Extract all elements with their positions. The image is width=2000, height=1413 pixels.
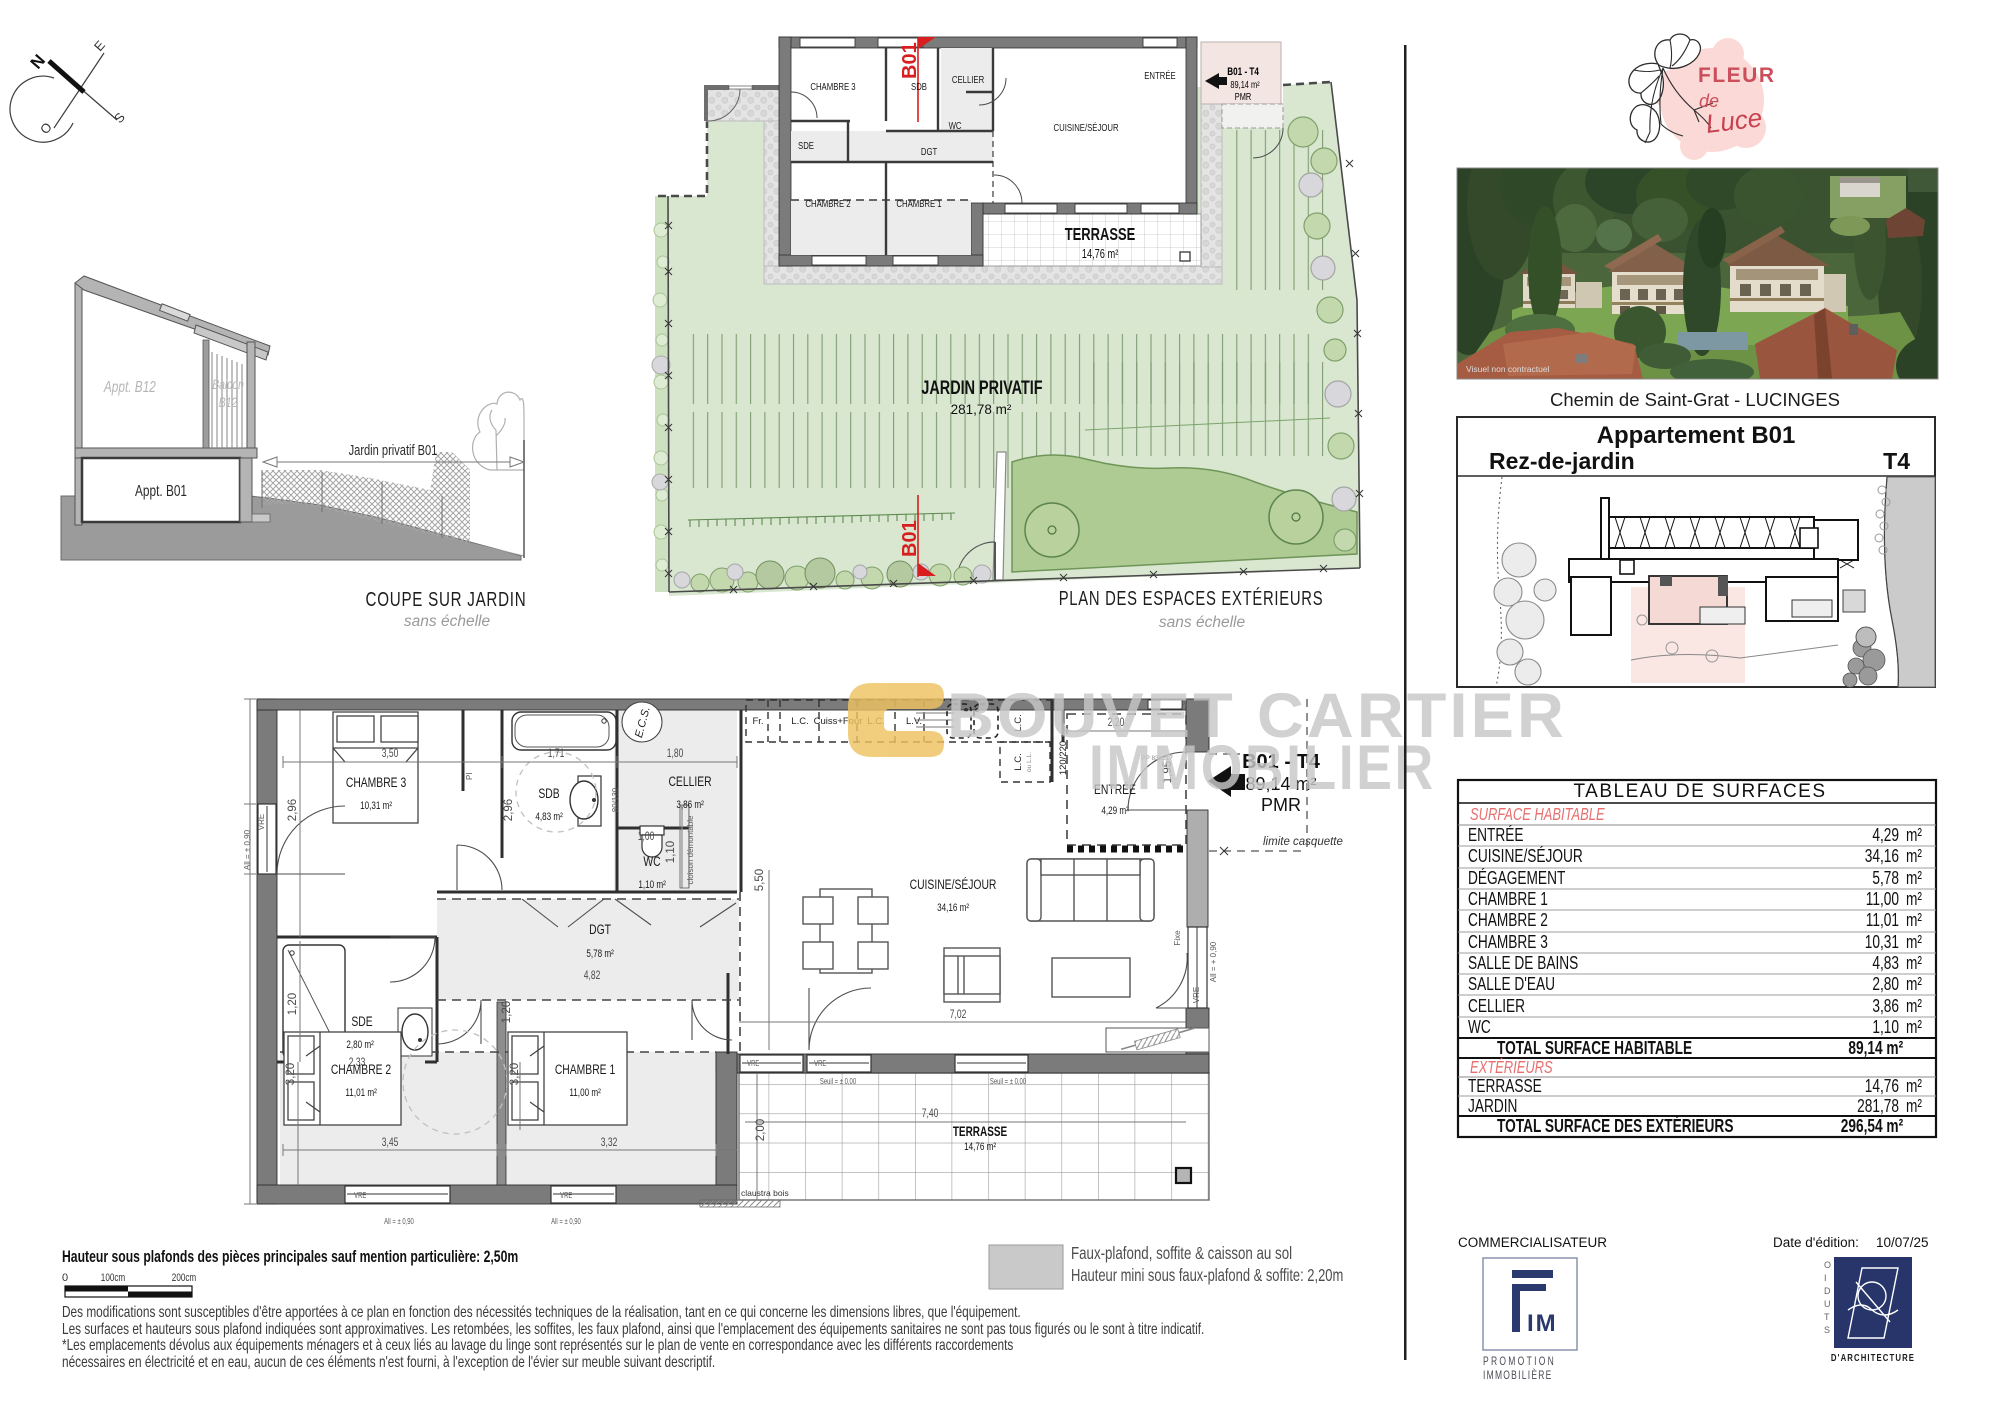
svg-text:Chemin de Saint-Grat - LUCINGE: Chemin de Saint-Grat - LUCINGES: [1550, 389, 1840, 410]
svg-text:11,01 m²: 11,01 m²: [345, 1087, 377, 1100]
svg-text:ou L.L.: ou L.L.: [1026, 752, 1033, 772]
svg-text:m²: m²: [1906, 1076, 1922, 1096]
svg-text:CUISINE/SÉJOUR: CUISINE/SÉJOUR: [1468, 845, 1583, 867]
svg-text:14,76: 14,76: [1865, 1076, 1899, 1096]
svg-text:L.C.: L.C.: [791, 716, 808, 727]
svg-text:sans échelle: sans échelle: [404, 613, 491, 630]
svg-text:VRE: VRE: [560, 1192, 572, 1200]
svg-text:4,82: 4,82: [584, 970, 601, 983]
svg-text:Fixe: Fixe: [1173, 930, 1182, 946]
svg-text:1,10: 1,10: [665, 841, 677, 863]
svg-text:Rez-de-jardin: Rez-de-jardin: [1489, 448, 1635, 474]
svg-text:IMMOBILIÈRE: IMMOBILIÈRE: [1483, 1368, 1553, 1383]
svg-text:4,29 m²: 4,29 m²: [1101, 805, 1129, 818]
svg-text:2,80: 2,80: [1872, 974, 1899, 994]
svg-text:Balcon: Balcon: [212, 376, 244, 392]
svg-text:3,20: 3,20: [285, 1063, 297, 1085]
svg-text:4,83 m²: 4,83 m²: [535, 811, 563, 824]
svg-text:2,80 m²: 2,80 m²: [346, 1039, 374, 1052]
svg-text:CHAMBRE 2: CHAMBRE 2: [1468, 910, 1548, 930]
svg-text:2,96: 2,96: [287, 799, 299, 821]
svg-text:Hauteur mini sous faux-plafond: Hauteur mini sous faux-plafond & soffite…: [1071, 1266, 1343, 1285]
svg-text:CHAMBRE 2: CHAMBRE 2: [331, 1061, 391, 1077]
svg-text:11,00 m²: 11,00 m²: [569, 1087, 601, 1100]
svg-text:O: O: [37, 119, 55, 136]
svg-text:2,00: 2,00: [755, 1119, 767, 1141]
svg-text:TOTAL SURFACE DES EXTÉRIEURS: TOTAL SURFACE DES EXTÉRIEURS: [1497, 1115, 1734, 1137]
svg-text:SDE: SDE: [351, 1013, 372, 1029]
svg-text:3,50: 3,50: [382, 748, 399, 761]
svg-text:JARDIN PRIVATIF: JARDIN PRIVATIF: [921, 376, 1042, 399]
svg-text:T: T: [1824, 1312, 1830, 1322]
svg-text:CHAMBRE 2: CHAMBRE 2: [805, 198, 850, 209]
svg-text:281,78 m²: 281,78 m²: [951, 402, 1012, 417]
svg-text:L.C.: L.C.: [1013, 753, 1024, 770]
svg-text:EXTÉRIEURS: EXTÉRIEURS: [1470, 1058, 1553, 1077]
svg-text:89,14 m²: 89,14 m²: [1230, 79, 1259, 90]
svg-text:sans échelle: sans échelle: [1159, 614, 1246, 631]
svg-text:1,00: 1,00: [638, 831, 655, 844]
svg-text:1,71: 1,71: [548, 748, 565, 761]
svg-text:1,20: 1,20: [501, 1001, 513, 1023]
svg-text:3,86 m²: 3,86 m²: [676, 799, 704, 812]
svg-text:CELLIER: CELLIER: [668, 773, 711, 789]
svg-text:3,20: 3,20: [509, 1063, 521, 1085]
svg-text:CELLIER: CELLIER: [952, 74, 985, 85]
svg-text:296,54 m²: 296,54 m²: [1841, 1116, 1904, 1136]
svg-text:89,14 m²: 89,14 m²: [1848, 1038, 1903, 1058]
svg-text:PLAN DES ESPACES EXTÉRIEURS: PLAN DES ESPACES EXTÉRIEURS: [1059, 587, 1324, 610]
svg-text:3,86: 3,86: [1872, 996, 1899, 1016]
svg-text:Faux-plafond, soffite & caisso: Faux-plafond, soffite & caisson au sol: [1071, 1244, 1292, 1263]
svg-text:SDE: SDE: [798, 140, 814, 151]
svg-text:CHAMBRE 1: CHAMBRE 1: [896, 198, 941, 209]
svg-text:SDB: SDB: [538, 785, 559, 801]
svg-text:DGT: DGT: [921, 146, 938, 157]
svg-text:B01 - T4: B01 - T4: [1227, 66, 1259, 79]
svg-text:80/130: 80/130: [611, 787, 620, 812]
svg-text:Hauteur sous plafonds des pièc: Hauteur sous plafonds des pièces princip…: [62, 1248, 518, 1266]
svg-text:U: U: [1824, 1299, 1831, 1309]
svg-text:Seuil = ± 0,00: Seuil = ± 0,00: [990, 1078, 1026, 1086]
svg-text:All = ± 0,90: All = ± 0,90: [384, 1218, 414, 1226]
svg-text:CUISINE/SÉJOUR: CUISINE/SÉJOUR: [1054, 122, 1119, 133]
svg-text:IMMOBILIER: IMMOBILIER: [1089, 733, 1436, 803]
svg-text:7,40: 7,40: [922, 1108, 939, 1121]
svg-text:CHAMBRE 3: CHAMBRE 3: [1468, 932, 1548, 952]
svg-text:WC: WC: [949, 120, 962, 131]
svg-text:*Les emplacements dévolus aux: *Les emplacements dévolus aux équipement…: [62, 1335, 1013, 1353]
svg-text:Appartement B01: Appartement B01: [1597, 422, 1796, 449]
svg-text:100cm: 100cm: [101, 1272, 125, 1285]
svg-text:m²: m²: [1906, 846, 1922, 866]
svg-text:T4: T4: [1883, 448, 1910, 474]
svg-text:200cm: 200cm: [172, 1272, 196, 1285]
svg-text:VRE: VRE: [747, 1060, 759, 1068]
svg-text:D'ARCHITECTURE: D'ARCHITECTURE: [1831, 1352, 1915, 1363]
svg-text:Appt. B12: Appt. B12: [103, 377, 156, 395]
svg-text:10/07/25: 10/07/25: [1876, 1235, 1929, 1250]
svg-text:14,76 m²: 14,76 m²: [964, 1141, 997, 1154]
svg-text:5,78: 5,78: [1872, 868, 1899, 888]
svg-text:5,78 m²: 5,78 m²: [586, 948, 614, 961]
svg-text:m²: m²: [1906, 932, 1922, 952]
svg-text:m²: m²: [1906, 825, 1922, 845]
svg-text:I: I: [1824, 1273, 1827, 1283]
svg-text:cloison démontable: cloison démontable: [686, 815, 695, 884]
svg-text:SDB: SDB: [911, 81, 927, 92]
svg-text:3,45: 3,45: [382, 1137, 399, 1150]
svg-text:Date d'édition:: Date d'édition:: [1773, 1235, 1859, 1250]
svg-text:m²: m²: [1906, 889, 1922, 909]
svg-text:281,78: 281,78: [1857, 1096, 1899, 1116]
svg-text:COUPE SUR JARDIN: COUPE SUR JARDIN: [366, 588, 527, 611]
svg-text:34,16: 34,16: [1865, 846, 1899, 866]
svg-text:CUISINE/SÉJOUR: CUISINE/SÉJOUR: [910, 875, 997, 892]
svg-text:PMR: PMR: [1235, 91, 1251, 102]
svg-text:WC: WC: [643, 853, 660, 869]
svg-text:CHAMBRE 3: CHAMBRE 3: [346, 774, 406, 790]
svg-text:m²: m²: [1906, 1096, 1922, 1116]
svg-text:TABLEAU DE SURFACES: TABLEAU DE SURFACES: [1573, 781, 1826, 802]
svg-text:m²: m²: [1906, 1017, 1922, 1037]
svg-text:B12: B12: [219, 394, 238, 410]
svg-text:E: E: [91, 37, 108, 54]
svg-text:Fr.: Fr.: [752, 716, 763, 727]
svg-text:All = ± 0,90: All = ± 0,90: [551, 1218, 581, 1226]
svg-text:Seuil = ± 0,00: Seuil = ± 0,00: [820, 1078, 856, 1086]
svg-text:TOTAL SURFACE HABITABLE: TOTAL SURFACE HABITABLE: [1497, 1038, 1692, 1058]
svg-text:m²: m²: [1906, 953, 1922, 973]
svg-text:B01: B01: [899, 42, 921, 79]
svg-text:1,10: 1,10: [1872, 1017, 1899, 1037]
svg-text:SURFACE HABITABLE: SURFACE HABITABLE: [1470, 805, 1605, 824]
svg-text:claustra bois: claustra bois: [741, 1188, 789, 1198]
svg-text:Visuel non contractuel: Visuel non contractuel: [1466, 364, 1550, 374]
svg-text:1,80: 1,80: [667, 748, 684, 761]
svg-text:limite casquette: limite casquette: [1263, 836, 1343, 848]
svg-text:VRE: VRE: [354, 1192, 366, 1200]
svg-text:DÉGAGEMENT: DÉGAGEMENT: [1468, 867, 1565, 889]
svg-text:All = + 0,90: All = + 0,90: [1209, 941, 1218, 982]
svg-text:TERRASSE: TERRASSE: [1468, 1076, 1542, 1096]
svg-text:S: S: [111, 109, 128, 126]
svg-text:0: 0: [62, 1272, 68, 1284]
svg-text:nécessaires en électricité et: nécessaires en électricité et en eau, au…: [62, 1352, 715, 1370]
svg-text:Des modifications sont suscept: Des modifications sont susceptibles d'êt…: [62, 1302, 1021, 1320]
svg-text:D: D: [1824, 1286, 1831, 1296]
svg-text:ENTRÉE: ENTRÉE: [1468, 824, 1524, 846]
svg-text:m²: m²: [1906, 974, 1922, 994]
svg-text:DGT: DGT: [589, 921, 611, 937]
svg-text:WC: WC: [1468, 1017, 1491, 1037]
svg-text:CHAMBRE 1: CHAMBRE 1: [1468, 889, 1548, 909]
svg-text:10,31 m²: 10,31 m²: [360, 800, 393, 813]
svg-text:m²: m²: [1906, 996, 1922, 1016]
svg-text:PI: PI: [465, 772, 474, 780]
svg-text:14,76 m²: 14,76 m²: [1082, 248, 1119, 262]
svg-text:JARDIN: JARDIN: [1468, 1096, 1517, 1116]
svg-text:Jardin privatif B01: Jardin privatif B01: [349, 441, 438, 458]
svg-text:SALLE D'EAU: SALLE D'EAU: [1468, 974, 1555, 994]
svg-text:m²: m²: [1906, 910, 1922, 930]
svg-text:1,20: 1,20: [287, 993, 299, 1015]
svg-text:N: N: [27, 51, 49, 73]
svg-text:1,10 m²: 1,10 m²: [638, 879, 666, 892]
svg-text:S: S: [1824, 1325, 1830, 1335]
svg-text:10,31: 10,31: [1865, 932, 1899, 952]
svg-text:Appt. B01: Appt. B01: [135, 481, 187, 499]
svg-text:3,32: 3,32: [601, 1137, 618, 1150]
svg-text:CHAMBRE 3: CHAMBRE 3: [810, 81, 855, 92]
svg-text:VRE: VRE: [814, 1060, 826, 1068]
svg-text:COMMERCIALISATEUR: COMMERCIALISATEUR: [1458, 1235, 1607, 1250]
svg-text:11,01: 11,01: [1866, 910, 1899, 930]
svg-text:B01: B01: [899, 520, 921, 557]
svg-text:TERRASSE: TERRASSE: [1065, 225, 1135, 244]
svg-text:CELLIER: CELLIER: [1468, 996, 1525, 1016]
svg-text:TERRASSE: TERRASSE: [953, 1123, 1007, 1139]
svg-text:PROMOTION: PROMOTION: [1483, 1356, 1556, 1369]
svg-text:VRE: VRE: [257, 814, 266, 830]
svg-text:5,50: 5,50: [754, 869, 766, 891]
svg-text:2,96: 2,96: [503, 799, 515, 821]
svg-text:4,83: 4,83: [1872, 953, 1899, 973]
svg-text:4,29: 4,29: [1872, 825, 1899, 845]
svg-text:VRE: VRE: [1192, 987, 1201, 1003]
svg-text:O: O: [1824, 1260, 1831, 1270]
svg-text:ENTRÉE: ENTRÉE: [1144, 70, 1175, 81]
svg-text:11,00: 11,00: [1866, 889, 1899, 909]
svg-text:m²: m²: [1906, 868, 1922, 888]
svg-text:L.V.: L.V.: [906, 716, 922, 727]
svg-text:All = ± 0,90: All = ± 0,90: [243, 829, 252, 870]
svg-text:SALLE DE BAINS: SALLE DE BAINS: [1468, 953, 1578, 973]
svg-text:7,02: 7,02: [950, 1009, 967, 1022]
svg-text:FLEUR: FLEUR: [1698, 64, 1776, 87]
svg-text:IM: IM: [1527, 1310, 1558, 1337]
svg-text:34,16 m²: 34,16 m²: [937, 902, 970, 915]
svg-text:CHAMBRE 1: CHAMBRE 1: [555, 1061, 615, 1077]
